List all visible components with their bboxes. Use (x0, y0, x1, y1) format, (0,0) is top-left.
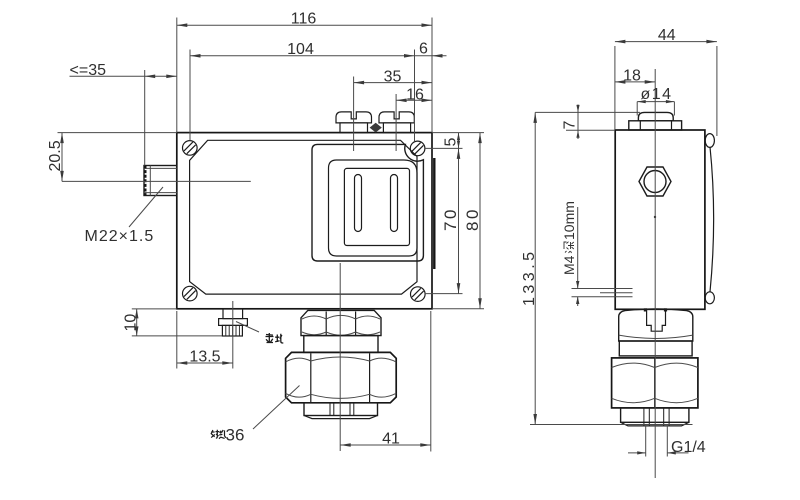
svg-text:6: 6 (419, 41, 428, 58)
svg-text:116: 116 (291, 11, 317, 28)
svg-text:5: 5 (443, 138, 460, 147)
svg-text:18: 18 (623, 68, 641, 85)
svg-text:35: 35 (384, 69, 402, 86)
svg-text:M22×1.5: M22×1.5 (85, 228, 155, 245)
svg-text:80: 80 (463, 207, 482, 231)
svg-text:<=35: <=35 (70, 62, 107, 79)
svg-text:10: 10 (123, 314, 140, 332)
svg-text:M4: M4 (561, 255, 577, 275)
svg-text:133.5: 133.5 (521, 248, 538, 306)
svg-text:10mm: 10mm (561, 201, 577, 240)
svg-text:ø14: ø14 (640, 86, 672, 103)
svg-text:13.5: 13.5 (189, 349, 220, 366)
svg-text:16: 16 (406, 87, 424, 104)
svg-text:20.5: 20.5 (47, 140, 64, 171)
svg-text:36: 36 (226, 426, 245, 445)
svg-text:70: 70 (441, 207, 460, 231)
svg-text:G1/4: G1/4 (671, 439, 706, 456)
svg-text:7: 7 (562, 121, 579, 130)
svg-text:44: 44 (658, 27, 676, 44)
svg-text:104: 104 (287, 41, 314, 58)
svg-text:41: 41 (382, 431, 400, 448)
